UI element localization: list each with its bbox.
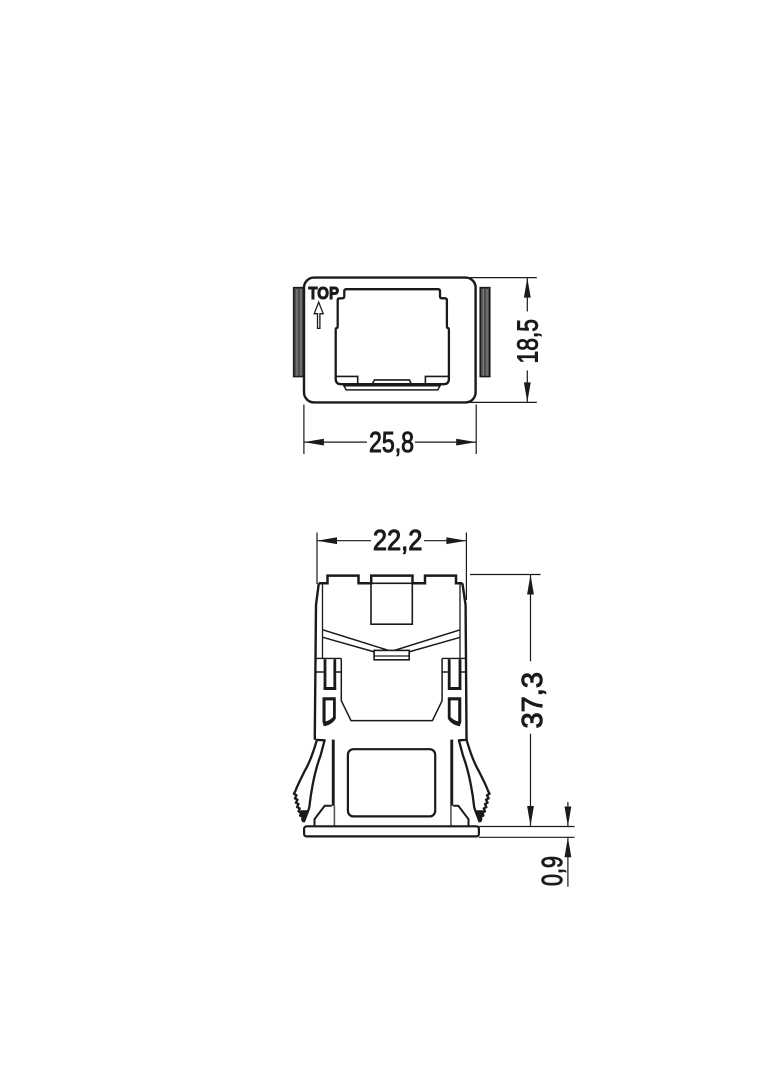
svg-text:37,3: 37,3 bbox=[517, 672, 549, 729]
svg-text:22,2: 22,2 bbox=[373, 525, 423, 557]
svg-text:18,5: 18,5 bbox=[512, 319, 544, 364]
svg-text:0,9: 0,9 bbox=[537, 856, 569, 886]
svg-text:25,8: 25,8 bbox=[369, 427, 414, 459]
svg-text:TOP: TOP bbox=[308, 283, 339, 303]
